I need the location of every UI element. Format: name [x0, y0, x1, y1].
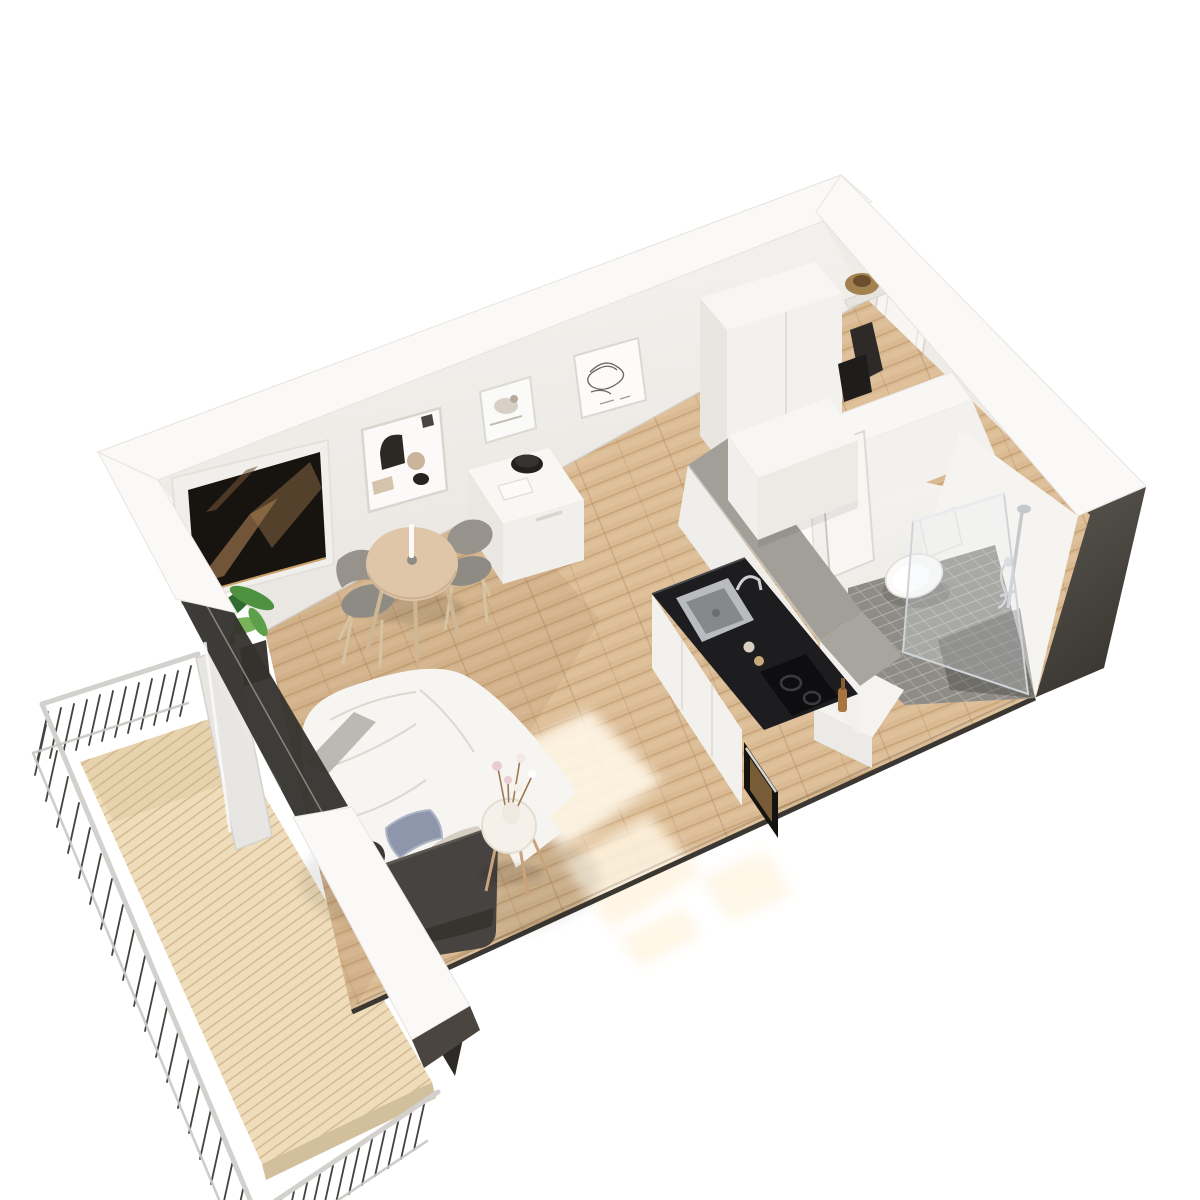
- counter-jar: [744, 642, 755, 653]
- floorplan-render: 3D isometric cutaway render of a studio …: [0, 0, 1200, 1200]
- floorplan-svg: 3D isometric cutaway render of a studio …: [0, 0, 1200, 1200]
- sink-drain: [712, 609, 720, 617]
- flower: [528, 770, 536, 778]
- flower: [492, 761, 502, 771]
- art-shape-circle: [407, 452, 425, 470]
- bottle-neck: [841, 678, 845, 690]
- shower-head: [1017, 505, 1031, 514]
- counter-jar: [754, 656, 764, 666]
- table-candle: [409, 524, 414, 558]
- flower: [516, 753, 526, 763]
- straw-hat-crown: [853, 275, 871, 287]
- bottle-body: [838, 688, 847, 712]
- flower: [514, 784, 523, 793]
- art-shape-ellipse: [413, 473, 429, 485]
- art-dot: [510, 395, 518, 403]
- flower-vase: [502, 802, 520, 824]
- flower: [504, 776, 512, 784]
- desk-hatbox-top: [515, 455, 539, 468]
